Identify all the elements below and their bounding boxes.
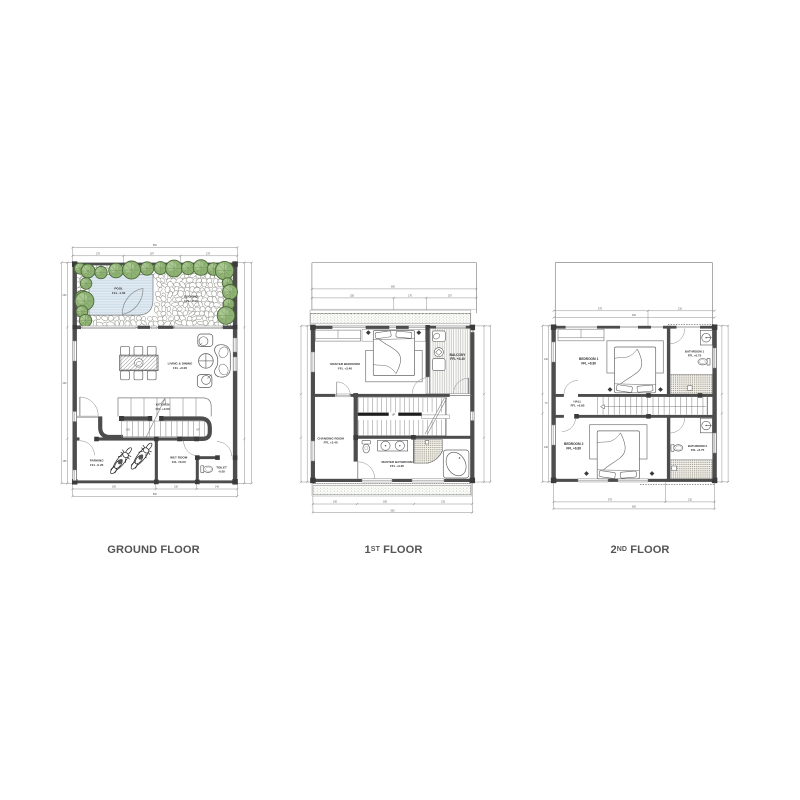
svg-text:-0.05: -0.05 xyxy=(218,469,225,473)
svg-text:FFL -0.10: FFL -0.10 xyxy=(184,299,198,303)
svg-text:600: 600 xyxy=(391,286,396,289)
svg-text:255: 255 xyxy=(350,295,355,298)
svg-text:FFL +6.80: FFL +6.80 xyxy=(571,403,585,407)
svg-text:150: 150 xyxy=(174,486,179,489)
svg-text:LIVING & DINING: LIVING & DINING xyxy=(168,362,193,366)
svg-text:207: 207 xyxy=(448,295,453,298)
svg-text:POOL: POOL xyxy=(114,286,123,290)
svg-text:DN: DN xyxy=(126,428,130,432)
svg-text:155: 155 xyxy=(63,460,68,463)
svg-text:287: 287 xyxy=(150,253,155,256)
svg-text:270: 270 xyxy=(96,253,101,256)
svg-text:UP: UP xyxy=(392,412,396,416)
svg-text:210: 210 xyxy=(678,308,683,311)
svg-text:BEDROOM 2: BEDROOM 2 xyxy=(564,442,584,446)
svg-text:WET ROOM: WET ROOM xyxy=(170,456,188,460)
svg-text:850: 850 xyxy=(153,493,158,496)
svg-text:MASTER BEDROOM: MASTER BEDROOM xyxy=(330,362,360,366)
svg-text:FFL +6.75: FFL +6.75 xyxy=(691,448,705,452)
svg-text:240: 240 xyxy=(544,358,549,361)
svg-text:600: 600 xyxy=(632,314,637,317)
svg-text:205: 205 xyxy=(383,501,388,504)
svg-text:215: 215 xyxy=(441,501,446,504)
svg-text:FFL +3.40: FFL +3.40 xyxy=(450,357,465,361)
svg-text:GROUND FLOOR: GROUND FLOOR xyxy=(107,544,199,556)
svg-text:FFL +3.40: FFL +3.40 xyxy=(324,441,338,445)
svg-text:FFL +0.00: FFL +0.00 xyxy=(156,407,170,411)
svg-text:300: 300 xyxy=(112,486,117,489)
svg-text:FFL +3.35: FFL +3.35 xyxy=(390,464,404,468)
svg-text:275: 275 xyxy=(206,253,211,256)
svg-text:170: 170 xyxy=(408,295,413,298)
svg-text:230: 230 xyxy=(63,294,68,297)
svg-text:600: 600 xyxy=(391,509,396,512)
svg-text:FFL +6.75: FFL +6.75 xyxy=(688,354,702,358)
svg-text:140: 140 xyxy=(215,486,220,489)
svg-text:600: 600 xyxy=(632,506,637,509)
svg-text:UP: UP xyxy=(196,428,200,432)
svg-text:150: 150 xyxy=(333,501,338,504)
svg-text:575: 575 xyxy=(608,499,613,502)
svg-text:FFL -1.00: FFL -1.00 xyxy=(112,291,126,295)
svg-text:575: 575 xyxy=(598,308,603,311)
svg-text:FFL ±0.00: FFL ±0.00 xyxy=(172,460,186,464)
svg-text:850: 850 xyxy=(153,244,158,247)
svg-text:240: 240 xyxy=(544,446,549,449)
svg-text:FFL +6.80: FFL +6.80 xyxy=(566,447,581,451)
svg-text:DECKING: DECKING xyxy=(184,294,199,298)
svg-text:400: 400 xyxy=(63,382,68,385)
svg-text:FFL +3.40: FFL +3.40 xyxy=(338,367,352,371)
svg-text:210: 210 xyxy=(688,499,693,502)
svg-text:FFL +0.00: FFL +0.00 xyxy=(173,366,187,370)
svg-text:PARKING: PARKING xyxy=(90,458,104,462)
svg-text:BEDROOM 1: BEDROOM 1 xyxy=(579,357,599,361)
svg-text:FFL -0.20: FFL -0.20 xyxy=(90,463,104,467)
svg-text:FFL +6.80: FFL +6.80 xyxy=(581,361,596,365)
